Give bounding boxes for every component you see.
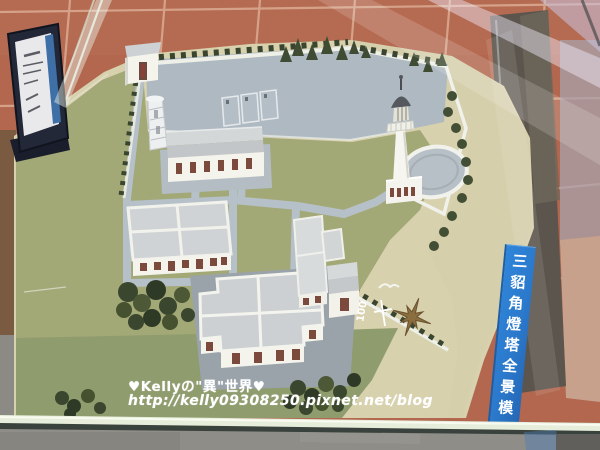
watermark-line2: http://kelly09308250.pixnet.net/blog xyxy=(128,393,433,409)
sign-reflection xyxy=(524,430,560,450)
photo-lighthouse-model-display: 三 貂 角 燈 塔 全 景 模 100 ♥Kellyの"異"世界♥ http:/… xyxy=(0,0,600,450)
glass-table-edge xyxy=(0,0,600,450)
watermark-line1: ♥Kellyの"異"世界♥ xyxy=(128,375,266,395)
